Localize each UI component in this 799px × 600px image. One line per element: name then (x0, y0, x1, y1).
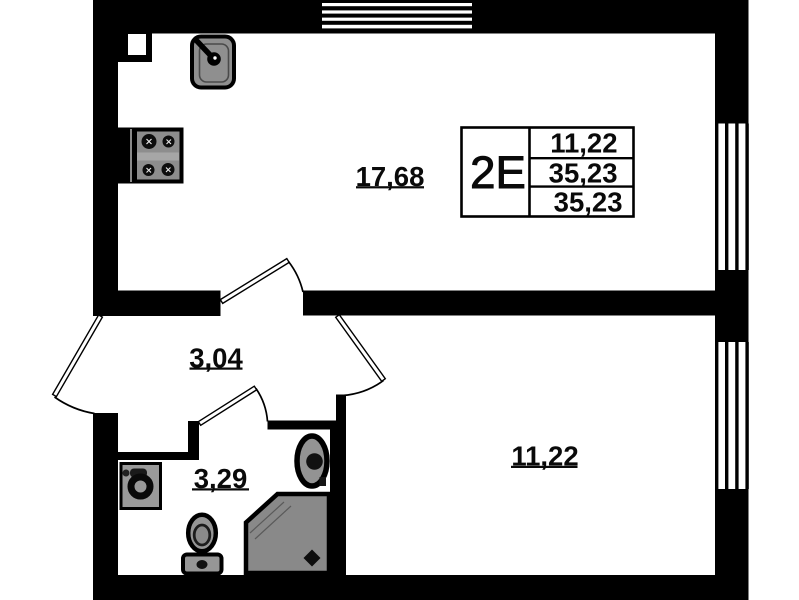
svg-text:2Е: 2Е (470, 147, 526, 198)
svg-text:35,23: 35,23 (554, 187, 623, 218)
svg-text:35,23: 35,23 (549, 158, 618, 189)
svg-text:11,22: 11,22 (550, 128, 617, 159)
